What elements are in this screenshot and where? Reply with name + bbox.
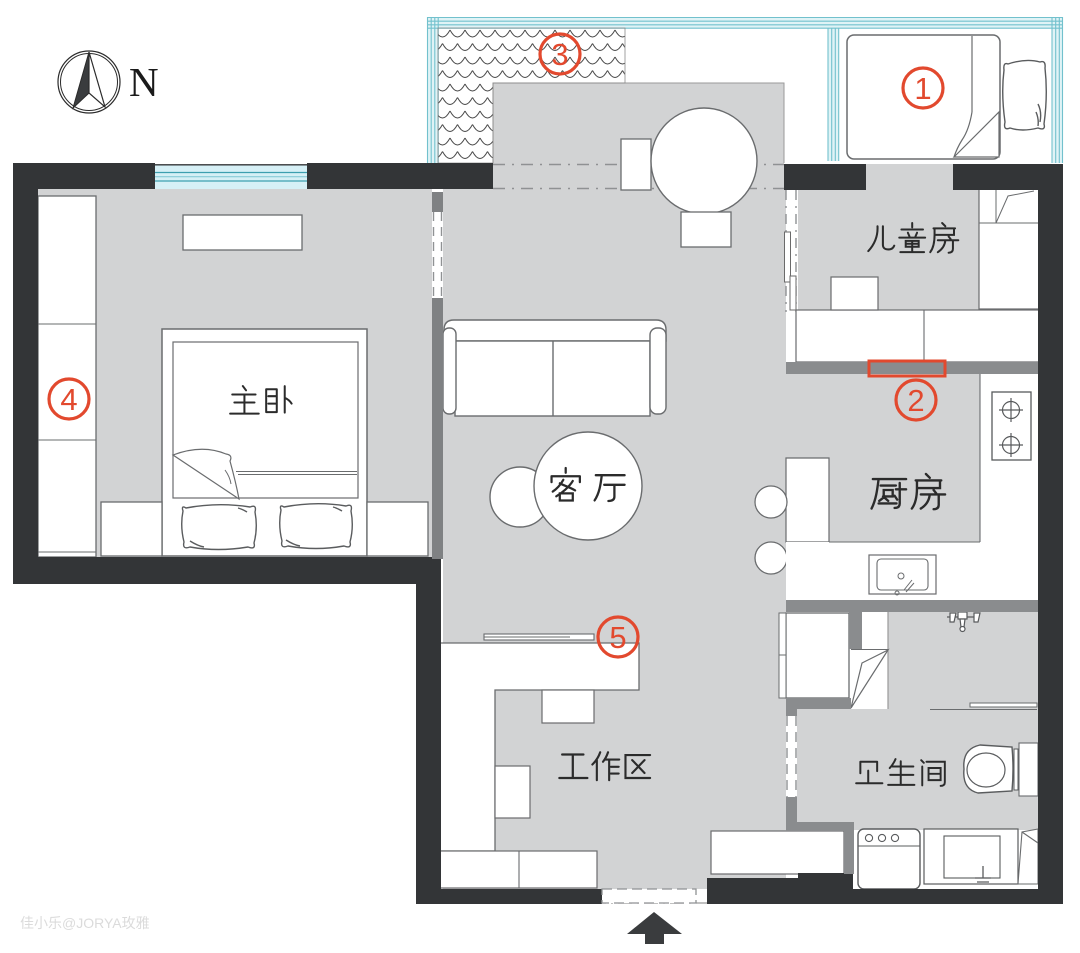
svg-text:4: 4: [60, 382, 77, 417]
svg-text:5: 5: [609, 620, 626, 655]
svg-text:N: N: [129, 59, 159, 105]
svg-text:1: 1: [914, 71, 931, 106]
svg-text:2: 2: [907, 383, 924, 418]
svg-text:3: 3: [551, 37, 568, 72]
svg-text:佳小乐@JORYA玫雅: 佳小乐@JORYA玫雅: [20, 915, 150, 931]
